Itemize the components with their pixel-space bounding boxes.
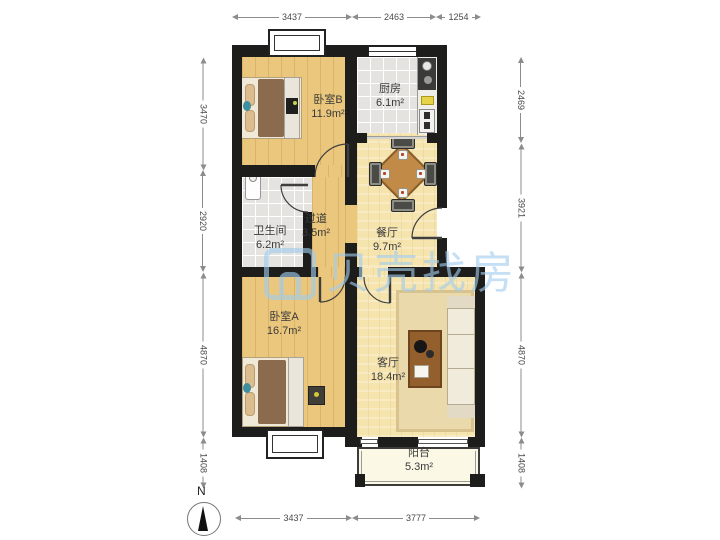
sofa-cushion-line-icon bbox=[447, 334, 475, 335]
balcony-fixed-glass bbox=[360, 439, 378, 444]
label-hallway: 过道 3.5m² bbox=[284, 212, 348, 240]
label-kitchen: 厨房 6.1m² bbox=[358, 82, 422, 110]
plate-icon bbox=[398, 150, 408, 160]
kitchen-burner2-icon bbox=[424, 122, 430, 129]
bed-b-decor-icon bbox=[243, 101, 251, 111]
plate3-icon bbox=[380, 169, 390, 179]
dim-left-3: 4870 bbox=[197, 273, 211, 438]
room-name: 餐厅 bbox=[355, 226, 419, 240]
dim-value: 1408 bbox=[197, 450, 210, 476]
room-name: 阳台 bbox=[387, 446, 451, 460]
dim-bottom-2: 3777 bbox=[352, 511, 480, 525]
kitchen-threshold-line bbox=[367, 136, 427, 139]
dim-bottom-1: 3437 bbox=[235, 511, 352, 525]
wall-kitchen-bottom-stub2 bbox=[427, 133, 437, 143]
sofa-armrest-bottom-icon bbox=[447, 404, 475, 418]
bed-a-pillow2-icon bbox=[245, 392, 255, 416]
plate4-icon bbox=[416, 169, 426, 179]
dim-value: 3777 bbox=[403, 512, 429, 525]
kitchen-sink-icon bbox=[422, 61, 432, 71]
bay-window-bedroom-b bbox=[268, 29, 326, 57]
dim-left-1: 3470 bbox=[197, 58, 211, 171]
label-bedroom-b: 卧室B 11.9m² bbox=[296, 93, 360, 121]
doorway-bedroom-b bbox=[315, 165, 348, 177]
arrow-right-icon bbox=[475, 14, 481, 20]
dim-value: 3470 bbox=[197, 101, 210, 127]
watermark-text: 贝壳找房 bbox=[326, 252, 518, 296]
arrow-right-icon bbox=[519, 483, 525, 489]
dim-value: 4870 bbox=[197, 342, 210, 368]
arrow-right-icon bbox=[518, 137, 524, 143]
wall-right-upper bbox=[437, 45, 447, 208]
wall-kitchen-bottom-stub bbox=[357, 133, 367, 143]
bay-window-bedroom-a bbox=[266, 429, 324, 459]
wall-bedroom-b-bottom2 bbox=[348, 165, 357, 177]
kitchen-pot-icon bbox=[424, 76, 432, 84]
floorplan-canvas: 卧室B 11.9m² 厨房 6.1m² 卫生间 6.2m² 过道 3.5m² 餐… bbox=[0, 0, 720, 540]
arrow-right-icon bbox=[474, 515, 480, 521]
room-area: 11.9m² bbox=[296, 107, 360, 121]
kitchen-burner-icon bbox=[424, 112, 430, 119]
nightstand-lamp-icon bbox=[314, 392, 319, 397]
bay-window-bedroom-a-glass bbox=[272, 435, 318, 453]
bed-b-pillow2-icon bbox=[245, 110, 255, 132]
bed-b-blanket-icon bbox=[258, 79, 284, 137]
room-area: 5.3m² bbox=[387, 460, 451, 474]
dim-value: 1254 bbox=[445, 11, 471, 24]
room-area: 6.1m² bbox=[358, 96, 422, 110]
room-name: 厨房 bbox=[358, 82, 422, 96]
dim-value: 3921 bbox=[515, 195, 528, 221]
label-living: 客厅 18.4m² bbox=[356, 356, 420, 384]
kettle-icon bbox=[414, 340, 427, 353]
room-name: 过道 bbox=[284, 212, 348, 226]
dim-value: 2463 bbox=[381, 11, 407, 24]
dim-value: 4870 bbox=[515, 342, 528, 368]
dim-value: 2920 bbox=[197, 208, 210, 234]
dim-value: 2469 bbox=[515, 87, 528, 113]
dim-top-1: 3437 bbox=[232, 10, 352, 24]
compass: N bbox=[184, 484, 224, 540]
arrow-right-icon bbox=[200, 266, 206, 272]
dim-left-2: 2920 bbox=[196, 170, 210, 272]
dim-right-4: 1408 bbox=[515, 438, 529, 489]
sofa-icon bbox=[447, 296, 475, 418]
dim-right-1: 2469 bbox=[514, 57, 528, 143]
dim-top-3: 1254 bbox=[436, 10, 481, 24]
sofa-cushion-line2-icon bbox=[447, 368, 475, 369]
wall-bedroom-b-bottom bbox=[242, 165, 315, 177]
bed-a-blanket-icon bbox=[258, 360, 286, 424]
room-area: 18.4m² bbox=[356, 370, 420, 384]
wardrobe-a-icon bbox=[288, 357, 304, 427]
room-name: 卧室B bbox=[296, 93, 360, 107]
label-balcony: 阳台 5.3m² bbox=[387, 446, 451, 474]
compass-needle-icon bbox=[198, 506, 208, 531]
room-area: 16.7m² bbox=[252, 324, 316, 338]
dim-left-4: 1408 bbox=[197, 438, 211, 489]
wall-divider-upper bbox=[345, 57, 357, 205]
kitchen-window-line bbox=[369, 51, 416, 52]
compass-north-label: N bbox=[197, 484, 206, 498]
room-name: 客厅 bbox=[356, 356, 420, 370]
beike-logo-arch bbox=[279, 272, 301, 295]
room-area: 3.5m² bbox=[284, 226, 348, 240]
beike-logo-icon bbox=[264, 248, 316, 300]
bay-window-bedroom-b-glass bbox=[274, 35, 320, 51]
balcony-glass-line bbox=[361, 481, 476, 482]
balcony-sliding-door bbox=[418, 439, 468, 444]
kitchen-board-icon bbox=[421, 96, 434, 105]
wall-living-bottom-c bbox=[468, 437, 485, 447]
dim-value: 3437 bbox=[279, 11, 305, 24]
dim-top-2: 2463 bbox=[352, 10, 436, 24]
label-bedroom-a: 卧室A 16.7m² bbox=[252, 310, 316, 338]
watermark: 贝壳找房 bbox=[264, 248, 518, 300]
plate2-icon bbox=[398, 188, 408, 198]
bed-a-decor-icon bbox=[243, 383, 251, 393]
room-name: 卧室A bbox=[252, 310, 316, 324]
kitchen-window bbox=[368, 46, 417, 57]
dining-chair-bottom-icon bbox=[391, 199, 415, 212]
balcony-post-bottom-right bbox=[470, 474, 485, 487]
dim-value: 3437 bbox=[280, 512, 306, 525]
cup-icon bbox=[426, 350, 434, 358]
balcony-post-bottom-left bbox=[355, 474, 365, 487]
doorway-bathroom bbox=[303, 177, 312, 212]
dim-value: 1408 bbox=[515, 450, 528, 476]
